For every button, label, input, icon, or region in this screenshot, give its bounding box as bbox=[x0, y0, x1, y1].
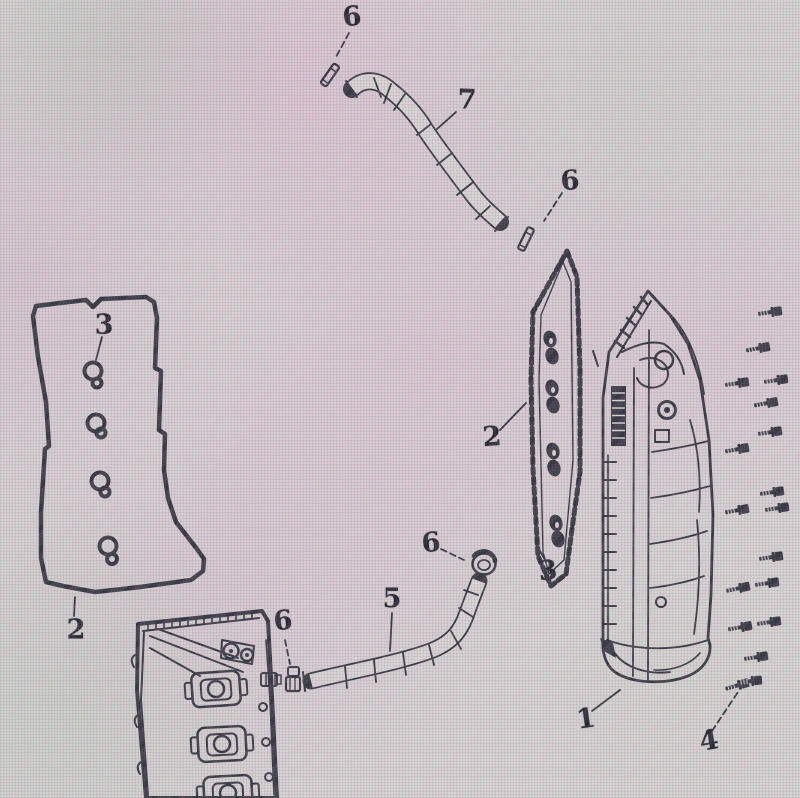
hose-clamp-pin-lower-drawing bbox=[518, 227, 535, 252]
vent-hose-upper-drawing bbox=[346, 78, 508, 231]
bolt-set-drawing bbox=[724, 306, 789, 694]
callout-valve-cover-gasket: 2 bbox=[67, 617, 86, 644]
callout-hose-clamp-pin-lower: 6 bbox=[560, 167, 581, 195]
callout-cylinder-head-cover: 1 bbox=[575, 704, 597, 733]
callout-vent-hose-upper: 7 bbox=[457, 86, 477, 114]
parts-diagram-photo: 6 7 6 3 2 2 3 1 4 5 6 6 bbox=[0, 0, 800, 798]
side-cover-gasket-drawing bbox=[531, 251, 580, 586]
valve-cover-drawing bbox=[132, 611, 281, 798]
callout-hose-clamp-ring: 6 bbox=[420, 529, 441, 558]
callout-grommet-right: 3 bbox=[537, 557, 559, 586]
gasket-grommets-right bbox=[542, 329, 567, 549]
callout-hose-clamp-pin-upper: 6 bbox=[341, 3, 363, 32]
valve-cover-gasket-drawing bbox=[33, 297, 204, 592]
hose-clamp-ring-drawing bbox=[473, 551, 496, 574]
callout-hose-clamp-small: 6 bbox=[272, 607, 293, 636]
callout-grommet-left: 3 bbox=[95, 312, 114, 339]
hose-clamp-pin-upper-drawing bbox=[320, 63, 339, 87]
callout-side-cover-gasket: 2 bbox=[482, 423, 503, 451]
exploded-diagram-artwork bbox=[0, 0, 800, 798]
gasket-grommets-left bbox=[85, 363, 118, 565]
cylinder-head-cover-drawing bbox=[593, 291, 713, 682]
callout-water-hose-lower: 5 bbox=[383, 586, 402, 613]
hose-clamp-small-drawing bbox=[286, 667, 300, 691]
